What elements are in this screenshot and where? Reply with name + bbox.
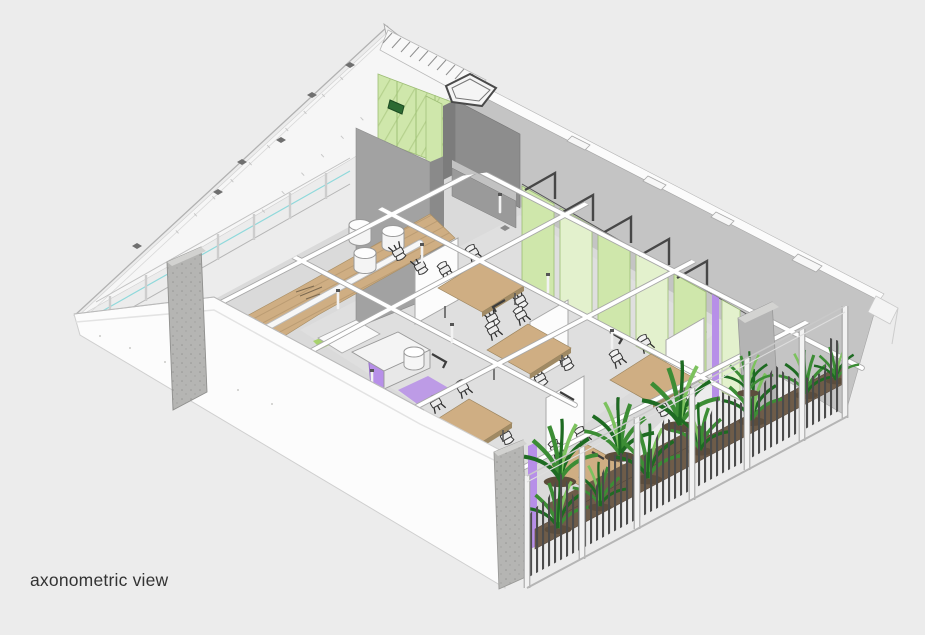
axonometric-scene [0,0,925,635]
concrete-column [494,440,528,589]
axonometric-drawing: axonometric view [0,0,925,635]
concrete-column [167,247,207,410]
view-caption: axonometric view [30,570,168,591]
